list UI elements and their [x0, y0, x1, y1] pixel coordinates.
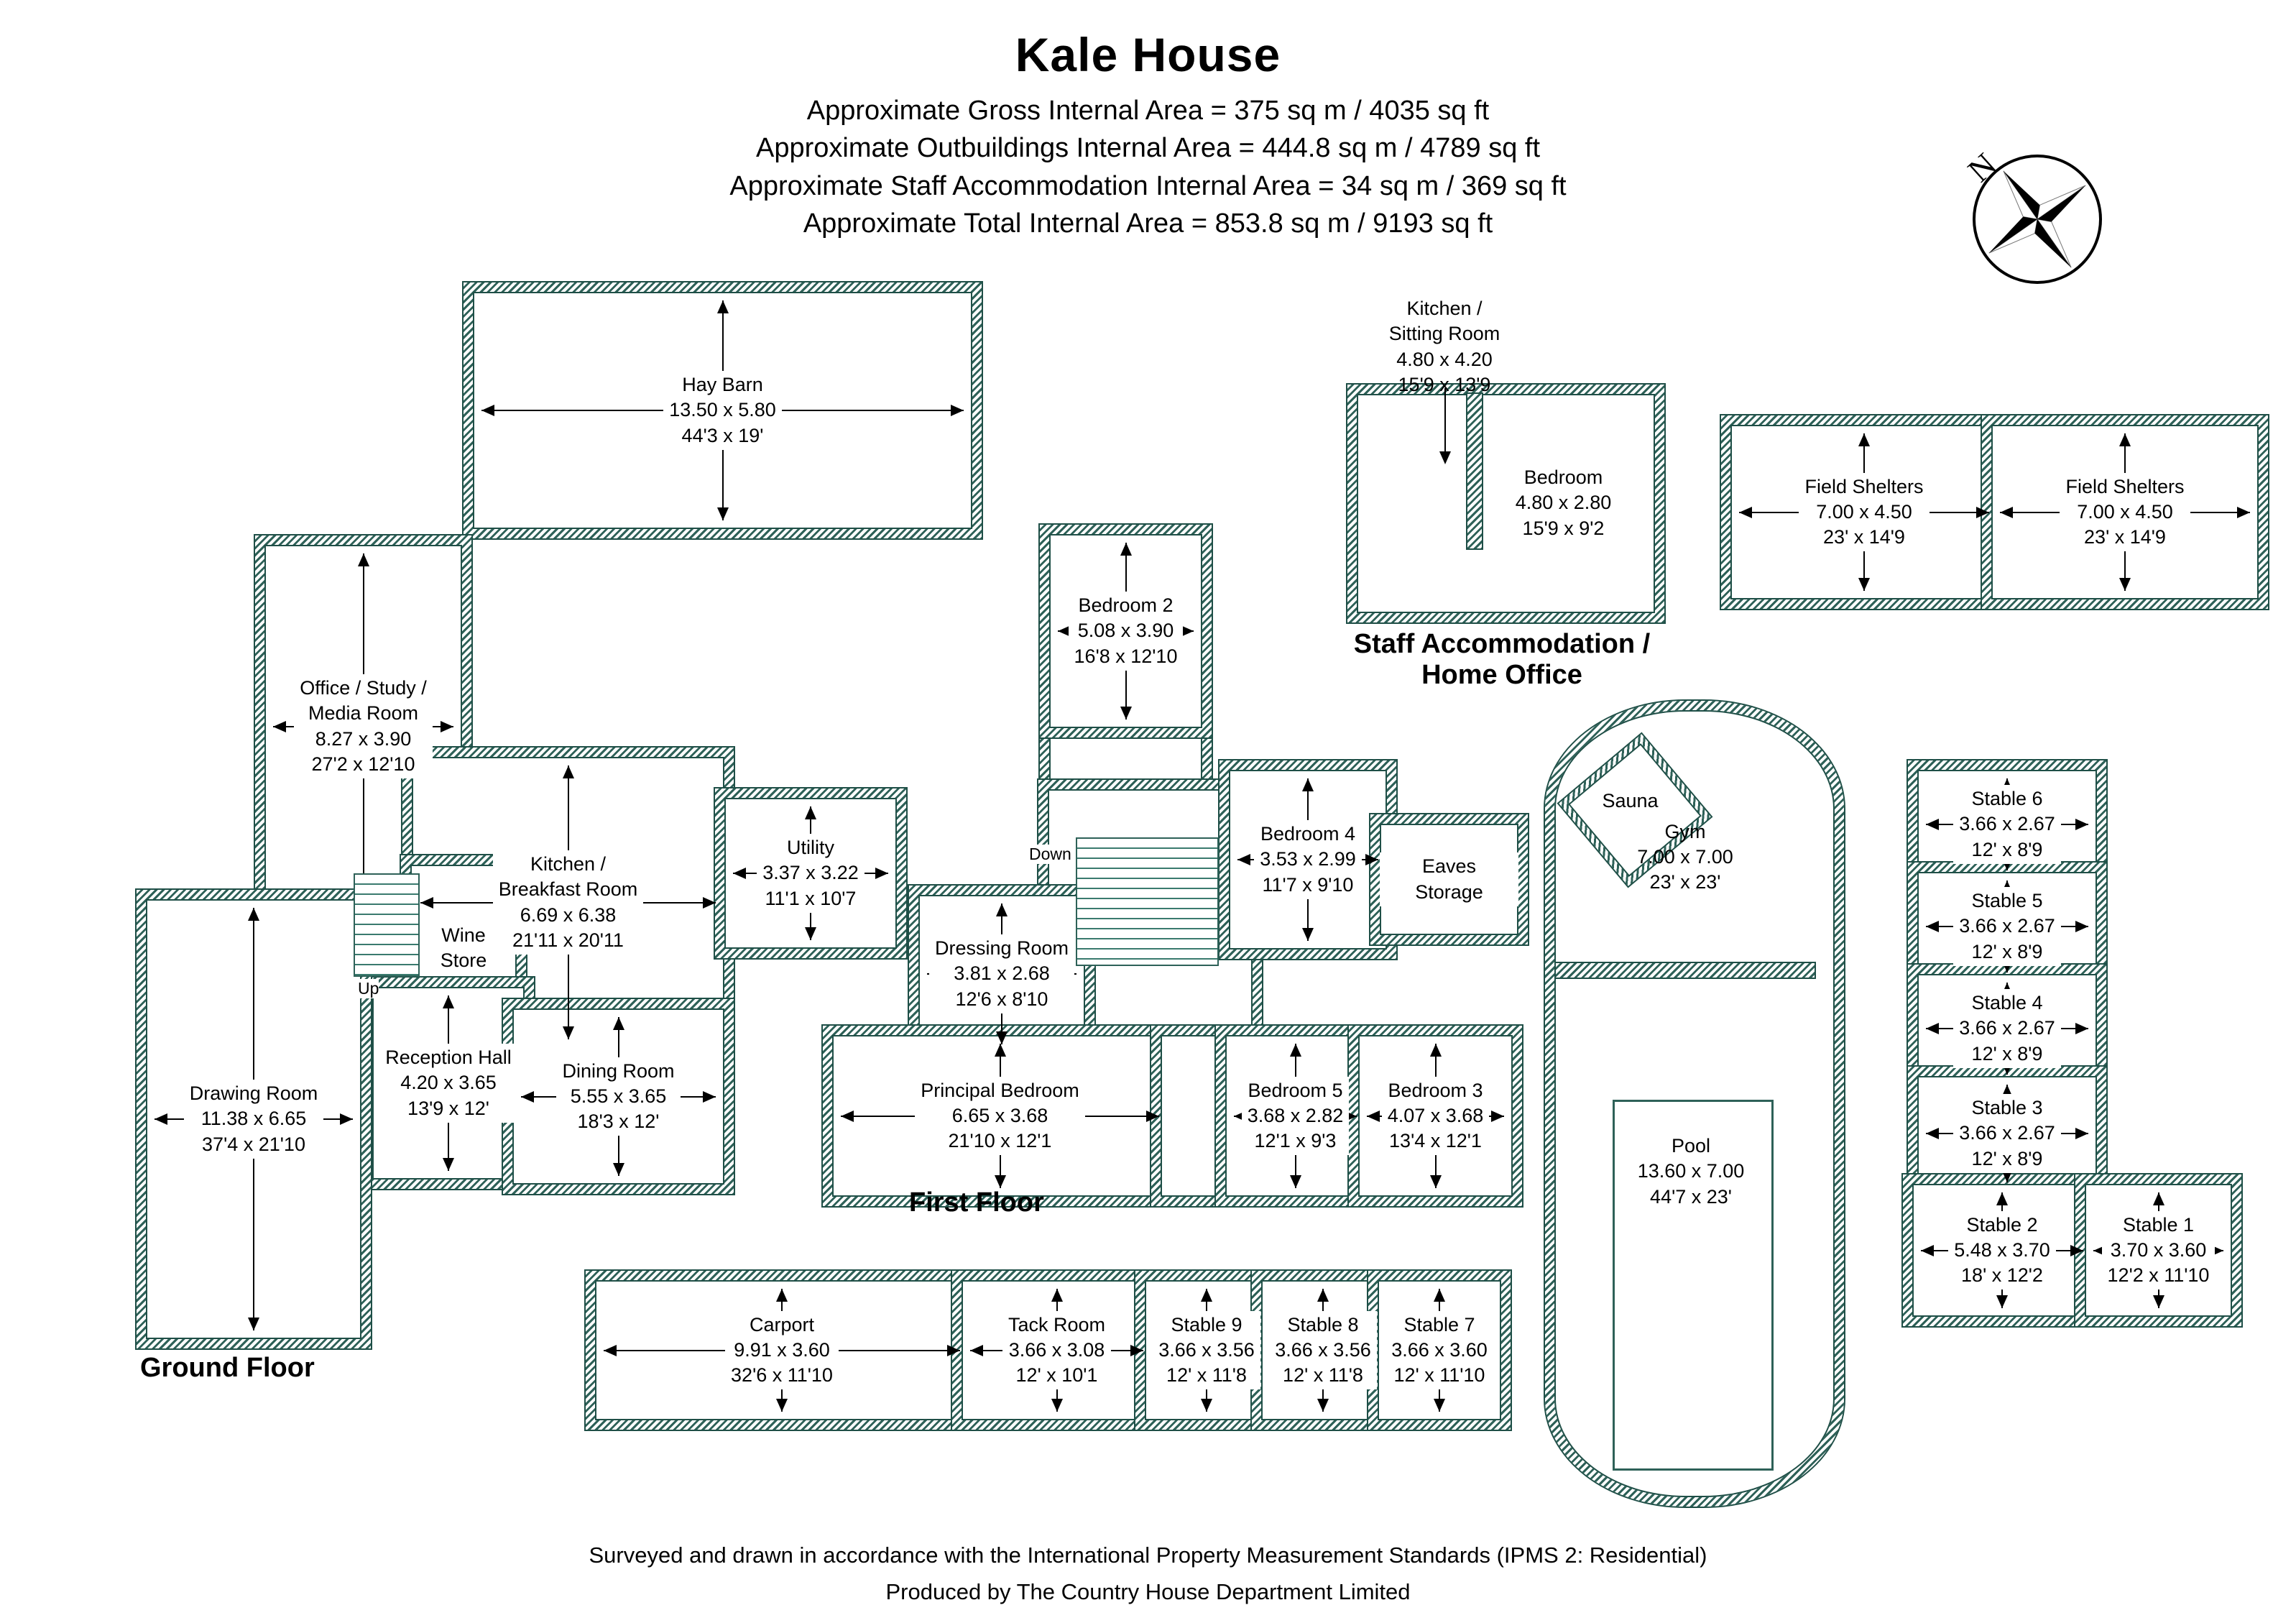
title-block: Kale House Approximate Gross Internal Ar… [0, 27, 2296, 243]
room-name: Dining Room [562, 1059, 674, 1084]
room-dim-metric: 4.20 x 3.65 [385, 1070, 512, 1095]
room-dim-imperial: 21'10 x 12'1 [921, 1128, 1079, 1154]
room-name: Stable 1 [2108, 1213, 2210, 1238]
room-name: Bedroom 4 [1260, 822, 1356, 847]
room-name: Principal Bedroom [921, 1078, 1079, 1103]
room-dim-metric: 3.81 x 2.68 [935, 961, 1069, 986]
room-name: Field Shelters [2065, 474, 2184, 500]
room-dim-imperial: 32'6 x 11'10 [731, 1363, 833, 1388]
area-line-gross: Approximate Gross Internal Area = 375 sq… [0, 92, 2296, 129]
room-name: Pool [1672, 1134, 1710, 1159]
area-line-staff: Approximate Staff Accommodation Internal… [0, 167, 2296, 205]
room-dim-metric: 3.66 x 2.67 [1959, 914, 2055, 939]
room-dim-imperial: 12'6 x 8'10 [935, 987, 1069, 1012]
room-dim-imperial: 12' x 11'8 [1275, 1363, 1371, 1388]
room-dim-imperial: 44'7 x 23' [1650, 1185, 1732, 1210]
room-dim-imperial: 23' x 14'9 [2065, 525, 2184, 550]
room-dim-metric: 3.66 x 2.67 [1959, 811, 2055, 837]
room-bedroom-3: Bedroom 3 4.07 x 3.68 13'4 x 12'1 [1349, 1026, 1522, 1206]
room-label: Stable 8 3.66 x 3.56 12' x 11'8 [1269, 1311, 1377, 1389]
room-name: Bedroom 5 [1248, 1078, 1344, 1103]
floorplan-canvas: Kale House Approximate Gross Internal Ar… [0, 0, 2296, 1623]
room-label: Reception Hall 4.20 x 3.65 13'9 x 12' [379, 1044, 517, 1122]
section-label-ground-floor: Ground Floor [140, 1353, 315, 1384]
room-dim-metric: 3.66 x 3.56 [1275, 1338, 1371, 1363]
label-leader-arrow [1444, 388, 1446, 453]
room-label: Utility 3.37 x 3.22 11'1 x 10'7 [757, 834, 865, 912]
room-label: Wine Store [435, 921, 493, 975]
room-label: Office / Study / Media Room 8.27 x 3.90 … [294, 674, 433, 778]
room-name: Hay Barn [669, 372, 776, 397]
room-name: Bedroom 2 [1074, 593, 1178, 618]
room-stable-7: Stable 7 3.66 x 3.60 12' x 11'10 [1368, 1271, 1511, 1430]
room-dim-metric: 3.53 x 2.99 [1260, 847, 1356, 872]
room-dim-metric: 3.37 x 3.22 [762, 860, 859, 886]
room-name: Utility [762, 835, 859, 860]
room-dim-metric: 13.50 x 5.80 [669, 397, 776, 423]
room-dim-imperial: 12' x 11'8 [1158, 1363, 1255, 1388]
room-dim-imperial: 21'11 x 20'11 [499, 928, 638, 953]
page-title: Kale House [0, 27, 2296, 82]
room-dim-imperial: 44'3 x 19' [669, 423, 776, 449]
area-line-outbuildings: Approximate Outbuildings Internal Area =… [0, 129, 2296, 167]
room-label-staff-bedroom: Bedroom 4.80 x 2.80 15'9 x 9'2 [1486, 446, 1641, 561]
compass-rose-icon: N [1955, 133, 2120, 298]
room-dim-imperial: 12' x 8'9 [1959, 837, 2055, 863]
room-dim-metric: 6.69 x 6.38 [499, 903, 638, 928]
room-dim-imperial: 12'1 x 9'3 [1248, 1128, 1344, 1154]
room-dim-imperial: 18'3 x 12' [562, 1109, 674, 1134]
room-name: Eaves Storage [1386, 854, 1513, 904]
room-label: Carport 9.91 x 3.60 32'6 x 11'10 [725, 1311, 839, 1389]
room-label: Stable 1 3.70 x 3.60 12'2 x 11'10 [2102, 1211, 2216, 1289]
room-label: Bedroom 3 4.07 x 3.68 13'4 x 12'1 [1382, 1077, 1490, 1155]
room-name: Gym [1665, 819, 1706, 845]
room-dim-imperial: 13'9 x 12' [385, 1096, 512, 1121]
room-dim-metric: 4.80 x 2.80 [1516, 490, 1612, 515]
room-name: Tack Room [1008, 1312, 1105, 1338]
stairs-down-label: Down [1029, 845, 1071, 864]
room-dim-metric: 3.66 x 2.67 [1959, 1016, 2055, 1041]
room-dim-metric: 3.66 x 3.60 [1391, 1338, 1488, 1363]
room-dim-imperial: 15'9 x 9'2 [1523, 516, 1605, 541]
room-dim-metric: 4.80 x 4.20 [1396, 347, 1493, 372]
room-label: Eaves Storage [1380, 852, 1518, 906]
room-dim-metric: 5.55 x 3.65 [562, 1084, 674, 1109]
room-dim-imperial: 13'4 x 12'1 [1388, 1128, 1484, 1154]
room-dim-metric: 5.48 x 3.70 [1954, 1238, 2050, 1263]
compass-north-label: N [1961, 146, 2004, 189]
room-stable-2: Stable 2 5.48 x 3.70 18' x 12'2 [1903, 1174, 2101, 1326]
room-dim-metric: 3.66 x 3.08 [1008, 1338, 1105, 1363]
room-eaves-storage: Eaves Storage [1370, 814, 1528, 944]
pool-house-divider-wall [1556, 963, 1815, 978]
room-label: Hay Barn 13.50 x 5.80 44'3 x 19' [663, 371, 782, 449]
room-label-staff-kitchen-sitting: Kitchen / Sitting Room 4.80 x 4.20 15'9 … [1347, 309, 1541, 385]
room-name: Bedroom 3 [1388, 1078, 1484, 1103]
room-label: Field Shelters 7.00 x 4.50 23' x 14'9 [1799, 473, 1929, 551]
room-name: Stable 9 [1158, 1312, 1255, 1338]
room-dim-imperial: 11'7 x 9'10 [1260, 873, 1356, 898]
room-dim-imperial: 37'4 x 21'10 [190, 1132, 318, 1157]
footer-text: Surveyed and drawn in accordance with th… [0, 1537, 2296, 1610]
room-name: Stable 3 [1959, 1095, 2055, 1121]
room-name: Field Shelters [1804, 474, 1923, 500]
room-name: Wine Store [441, 923, 487, 973]
room-name: Stable 4 [1959, 990, 2055, 1016]
room-label: Principal Bedroom 6.65 x 3.68 21'10 x 12… [915, 1077, 1085, 1155]
room-label: Bedroom 5 3.68 x 2.82 12'1 x 9'3 [1242, 1077, 1350, 1155]
room-dim-imperial: 23' x 23' [1650, 870, 1721, 895]
room-label-pool: Pool 13.60 x 7.00 44'7 x 23' [1613, 1118, 1769, 1226]
room-dim-metric: 7.00 x 4.50 [2065, 500, 2184, 525]
room-dim-imperial: 12' x 8'9 [1959, 1042, 2055, 1067]
room-carport: Carport 9.91 x 3.60 32'6 x 11'10 [586, 1271, 978, 1430]
room-dim-metric: 3.70 x 3.60 [2108, 1238, 2210, 1263]
room-name: Kitchen / Breakfast Room [499, 852, 638, 902]
room-dim-imperial: 12' x 10'1 [1008, 1363, 1105, 1388]
room-dim-imperial: 11'1 x 10'7 [762, 886, 859, 911]
section-label-staff-accommodation: Staff Accommodation / Home Office [1351, 629, 1653, 691]
room-dim-metric: 9.91 x 3.60 [731, 1338, 833, 1363]
room-stable-1: Stable 1 3.70 x 3.60 12'2 x 11'10 [2075, 1174, 2241, 1326]
room-label: Field Shelters 7.00 x 4.50 23' x 14'9 [2060, 473, 2190, 551]
room-field-shelter-1: Field Shelters 7.00 x 4.50 23' x 14'9 [1721, 415, 2007, 609]
room-name: Kitchen / Sitting Room [1389, 296, 1500, 346]
room-dim-metric: 5.08 x 3.90 [1074, 618, 1178, 643]
room-label: Kitchen / Breakfast Room 6.69 x 6.38 21'… [493, 850, 644, 954]
room-field-shelter-2: Field Shelters 7.00 x 4.50 23' x 14'9 [1982, 415, 2268, 609]
room-label: Dressing Room 3.81 x 2.68 12'6 x 8'10 [929, 934, 1074, 1013]
room-name: Stable 8 [1275, 1312, 1371, 1338]
room-dim-imperial: 27'2 x 12'10 [300, 752, 427, 777]
room-dim-metric: 8.27 x 3.90 [300, 727, 427, 752]
room-dim-metric: 3.66 x 2.67 [1959, 1121, 2055, 1146]
room-name: Stable 7 [1391, 1312, 1488, 1338]
section-label-first-floor: First Floor [909, 1187, 1044, 1218]
room-name: Drawing Room [190, 1081, 318, 1106]
stairs-up-label: Up [358, 979, 379, 998]
room-name: Stable 2 [1954, 1213, 2050, 1238]
room-dim-imperial: 12'2 x 11'10 [2108, 1263, 2210, 1288]
room-dim-imperial: 23' x 14'9 [1804, 525, 1923, 550]
room-hay-barn: Hay Barn 13.50 x 5.80 44'3 x 19' [464, 282, 982, 538]
room-name: Bedroom [1524, 465, 1603, 490]
room-dim-metric: 7.00 x 4.50 [1804, 500, 1923, 525]
room-name: Carport [731, 1312, 833, 1338]
room-bedroom-2: Bedroom 2 5.08 x 3.90 16'8 x 12'10 [1040, 525, 1212, 737]
room-dim-metric: 13.60 x 7.00 [1638, 1159, 1745, 1184]
room-utility: Utility 3.37 x 3.22 11'1 x 10'7 [715, 788, 906, 958]
room-label: Dining Room 5.55 x 3.65 18'3 x 12' [556, 1057, 680, 1136]
room-name: Office / Study / Media Room [300, 676, 427, 726]
room-dim-metric: 4.07 x 3.68 [1388, 1103, 1484, 1128]
footer-line-producer: Produced by The Country House Department… [0, 1573, 2296, 1610]
room-tack-room: Tack Room 3.66 x 3.08 12' x 10'1 [952, 1271, 1161, 1430]
room-dim-imperial: 12' x 8'9 [1959, 1146, 2055, 1172]
room-name: Reception Hall [385, 1045, 512, 1070]
room-name: Stable 5 [1959, 888, 2055, 914]
room-dim-metric: 3.66 x 3.56 [1158, 1338, 1255, 1363]
room-label: Stable 7 3.66 x 3.60 12' x 11'10 [1386, 1311, 1493, 1389]
room-dim-imperial: 12' x 11'10 [1391, 1363, 1488, 1388]
room-dim-imperial: 16'8 x 12'10 [1074, 644, 1178, 669]
area-line-total: Approximate Total Internal Area = 853.8 … [0, 205, 2296, 242]
staircase-down [1076, 837, 1219, 966]
room-dim-metric: 7.00 x 7.00 [1637, 845, 1733, 870]
room-name: Dressing Room [935, 936, 1069, 961]
room-label: Drawing Room 11.38 x 6.65 37'4 x 21'10 [184, 1080, 324, 1158]
room-dim-imperial: 12' x 8'9 [1959, 939, 2055, 965]
room-label: Stable 9 3.66 x 3.56 12' x 11'8 [1153, 1311, 1260, 1389]
room-dim-metric: 6.65 x 3.68 [921, 1103, 1079, 1128]
room-label: Stable 2 5.48 x 3.70 18' x 12'2 [1948, 1211, 2056, 1289]
room-name: Stable 6 [1959, 786, 2055, 811]
room-dim-metric: 11.38 x 6.65 [190, 1106, 318, 1131]
room-label: Tack Room 3.66 x 3.08 12' x 10'1 [1002, 1311, 1111, 1389]
staircase-up [354, 873, 420, 977]
room-dim-metric: 3.68 x 2.82 [1248, 1103, 1344, 1128]
room-label-gym: Gym 7.00 x 7.00 23' x 23' [1610, 805, 1761, 909]
footer-line-standards: Surveyed and drawn in accordance with th… [0, 1537, 2296, 1573]
room-drawing: Drawing Room 11.38 x 6.65 37'4 x 21'10 [137, 890, 371, 1348]
room-dim-imperial: 18' x 12'2 [1954, 1263, 2050, 1288]
room-principal-bedroom: Principal Bedroom 6.65 x 3.68 21'10 x 12… [823, 1026, 1177, 1206]
room-dining: Dining Room 5.55 x 3.65 18'3 x 12' [503, 999, 734, 1194]
room-label: Bedroom 4 3.53 x 2.99 11'7 x 9'10 [1254, 820, 1362, 898]
staff-divider-wall [1467, 394, 1482, 548]
room-label: Stable 5 3.66 x 2.67 12' x 8'9 [1953, 887, 2061, 965]
room-label: Stable 4 3.66 x 2.67 12' x 8'9 [1953, 989, 2061, 1067]
room-label: Bedroom 2 5.08 x 3.90 16'8 x 12'10 [1069, 592, 1184, 670]
room-label: Stable 6 3.66 x 2.67 12' x 8'9 [1953, 785, 2061, 863]
room-label: Stable 3 3.66 x 2.67 12' x 8'9 [1953, 1094, 2061, 1172]
